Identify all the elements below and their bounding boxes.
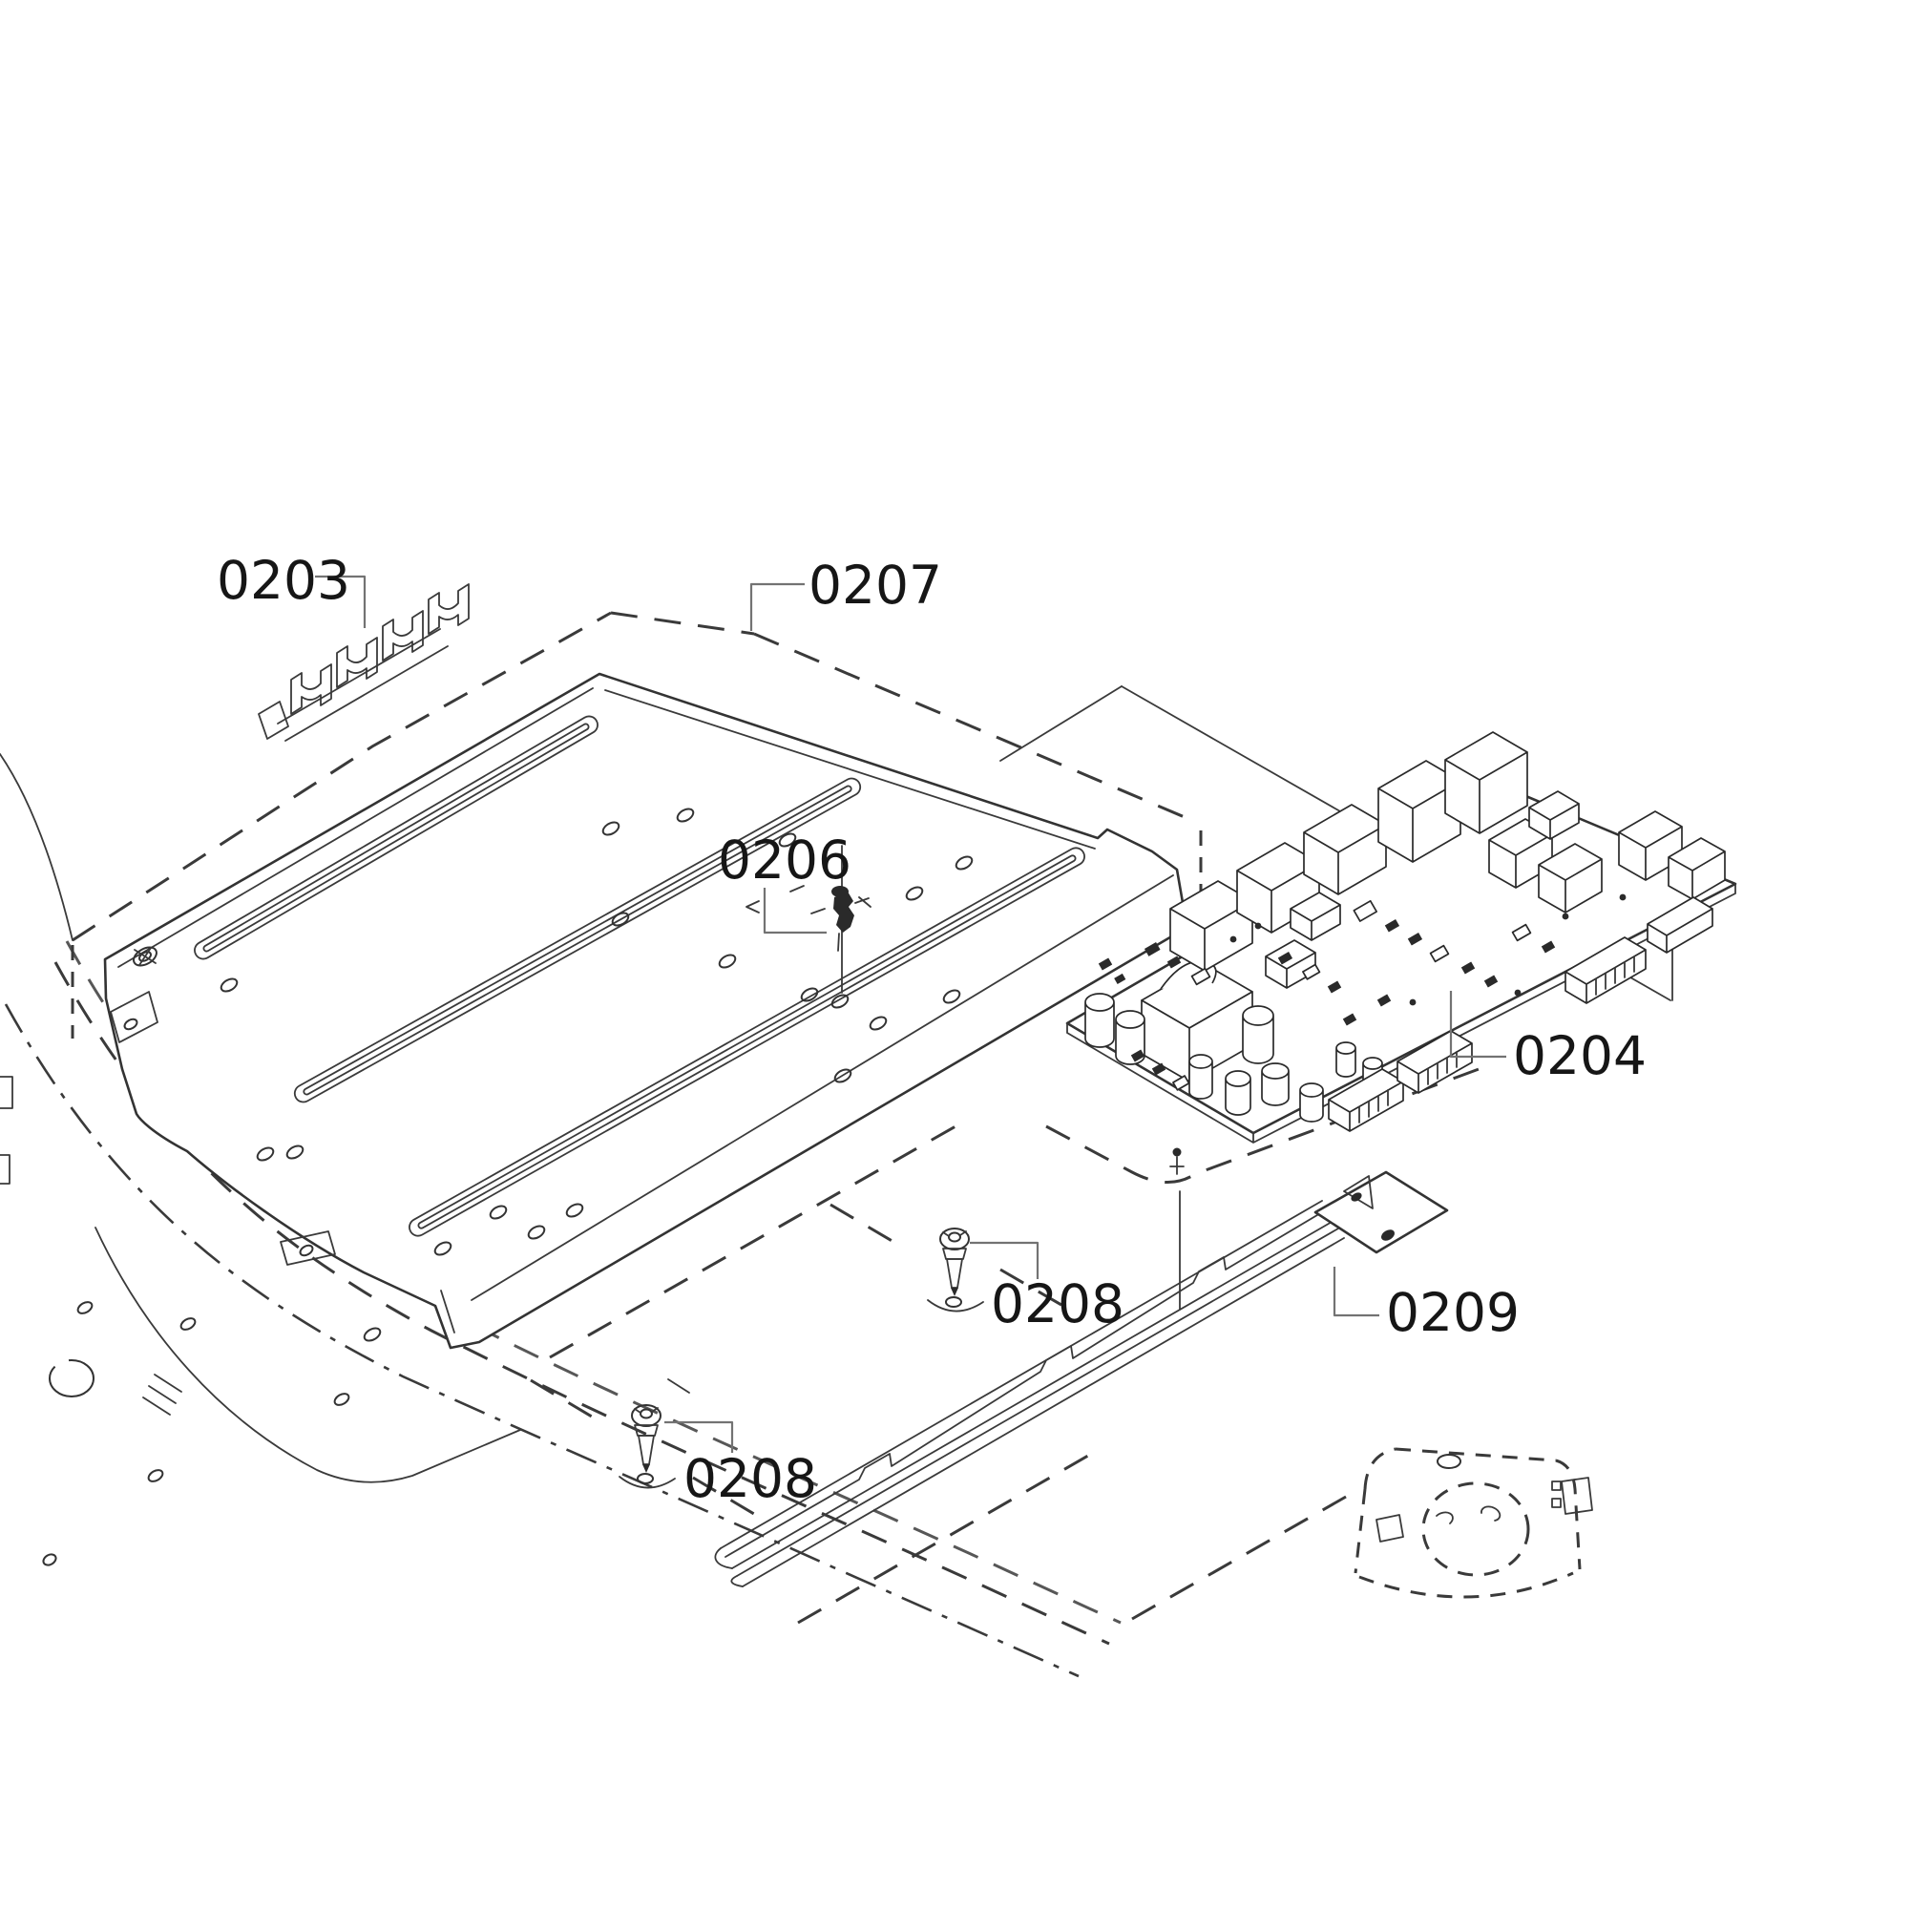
label-0204: 0204: [1513, 1025, 1647, 1086]
leader-0207: [751, 584, 805, 631]
label-0209: 0209: [1386, 1282, 1520, 1343]
label-0208-lower: 0208: [683, 1448, 817, 1509]
label-0206: 0206: [718, 829, 851, 891]
diagram-canvas: 0203 0207 0206 0204 0208 0209 0208: [0, 0, 1932, 1932]
mounting-plate: [105, 674, 1185, 1348]
label-0208-upper: 0208: [991, 1273, 1124, 1334]
leader-0209: [1334, 1267, 1379, 1315]
label-0203: 0203: [217, 550, 350, 611]
part-0209-rail: [715, 1172, 1447, 1586]
exploded-parts-diagram: 0203 0207 0206 0204 0208 0209 0208: [0, 0, 1932, 1932]
bracket-outline: [1355, 1449, 1592, 1597]
label-0207: 0207: [808, 555, 942, 616]
